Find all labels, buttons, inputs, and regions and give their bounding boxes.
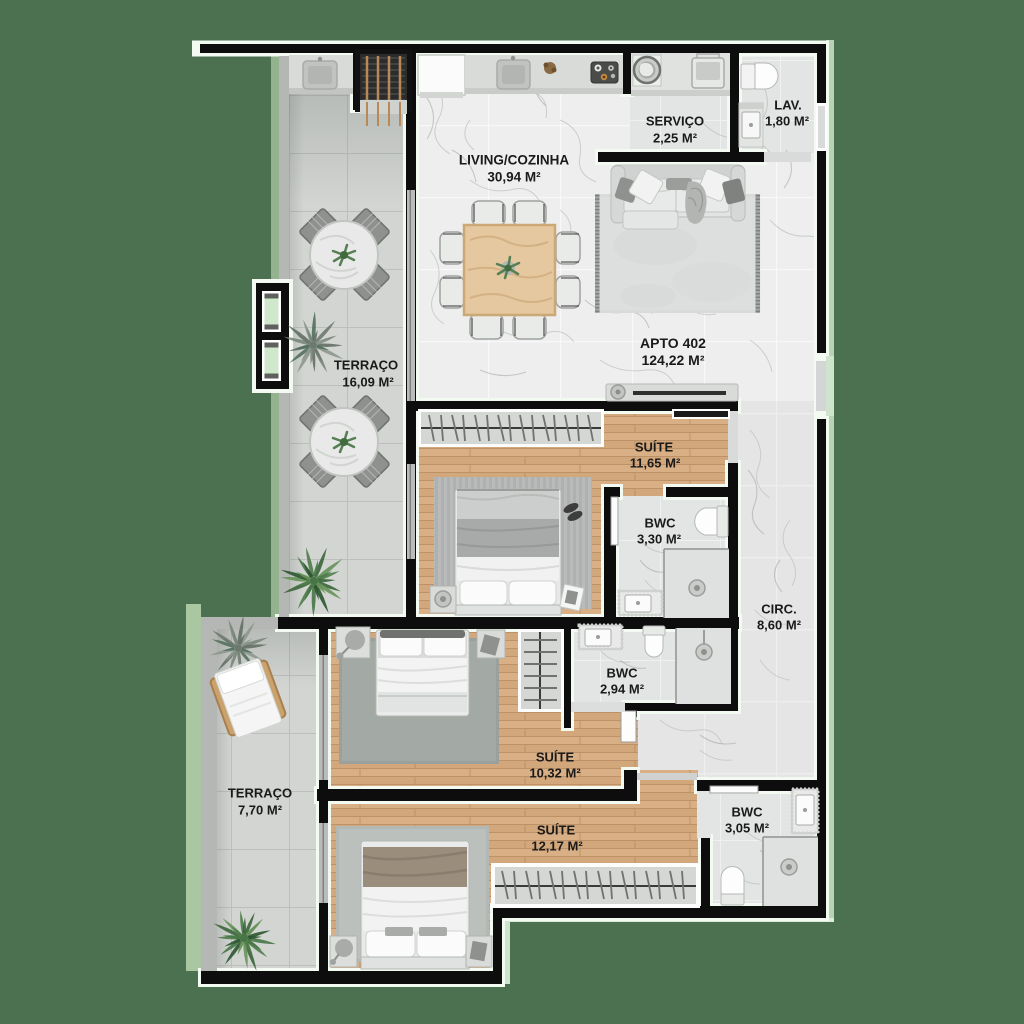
svg-text:BWC: BWC — [731, 805, 763, 820]
svg-text:8,60 M²: 8,60 M² — [757, 618, 802, 633]
svg-text:30,94 M²: 30,94 M² — [487, 170, 541, 185]
svg-text:SUÍTE: SUÍTE — [635, 440, 674, 455]
svg-text:12,17 M²: 12,17 M² — [531, 839, 583, 854]
svg-text:2,94 M²: 2,94 M² — [600, 682, 645, 697]
svg-text:SUÍTE: SUÍTE — [537, 823, 576, 838]
svg-text:BWC: BWC — [644, 516, 676, 531]
svg-text:LIVING/COZINHA: LIVING/COZINHA — [459, 153, 569, 168]
svg-text:TERRAÇO: TERRAÇO — [228, 786, 292, 801]
svg-text:APTO 402: APTO 402 — [640, 335, 706, 351]
svg-text:SERVIÇO: SERVIÇO — [646, 114, 704, 129]
svg-text:11,65 M²: 11,65 M² — [630, 456, 681, 471]
svg-text:10,32 M²: 10,32 M² — [529, 766, 581, 781]
svg-text:3,30 M²: 3,30 M² — [637, 532, 682, 547]
svg-text:2,25 M²: 2,25 M² — [653, 131, 698, 146]
svg-text:1,80 M²: 1,80 M² — [765, 114, 810, 129]
svg-text:7,70 M²: 7,70 M² — [238, 803, 283, 818]
svg-text:16,09 M²: 16,09 M² — [342, 375, 394, 390]
svg-text:3,05 M²: 3,05 M² — [725, 821, 770, 836]
svg-text:BWC: BWC — [606, 666, 638, 681]
svg-text:124,22 M²: 124,22 M² — [641, 352, 704, 368]
svg-text:TERRAÇO: TERRAÇO — [334, 358, 398, 373]
svg-text:CIRC.: CIRC. — [761, 602, 796, 617]
svg-text:LAV.: LAV. — [774, 98, 801, 113]
svg-text:SUÍTE: SUÍTE — [536, 750, 575, 765]
